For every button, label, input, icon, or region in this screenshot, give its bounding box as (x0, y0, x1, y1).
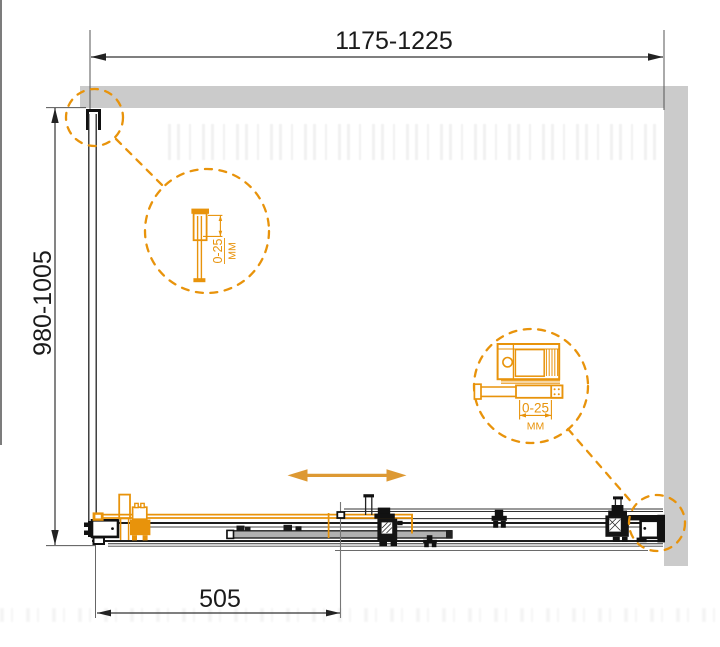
arrowhead-icon (326, 610, 340, 617)
right-roller (605, 496, 628, 541)
height-dimension-label: 980-1005 (29, 250, 57, 356)
door-travel-dimension-label: 505 (199, 585, 241, 613)
fixed-glass-panel (88, 111, 100, 523)
drawing-canvas: 1175-1225 980-1005 (0, 0, 720, 647)
detail-top-adjustment-label: 0-25 (211, 238, 225, 263)
top-wall (80, 86, 688, 108)
installation-diagram: 1175-1225 980-1005 (0, 0, 720, 647)
detail-top-unit-label: ММ (227, 242, 239, 260)
height-dimension: 980-1005 (29, 108, 96, 546)
door-clip (284, 525, 293, 531)
detail-bottom-drawing: 0-25 ММ (474, 344, 562, 433)
right-wall (664, 86, 688, 566)
door-clip (237, 526, 245, 531)
detail-bottom-unit-label: ММ (527, 421, 545, 433)
leader-line (568, 429, 634, 505)
arrowhead-icon (648, 53, 663, 61)
slide-direction-arrow-icon (288, 469, 407, 481)
detail-top-drawing: 0-25 ММ (191, 209, 238, 283)
arrowhead-icon (91, 53, 106, 61)
arrowhead-icon (219, 231, 223, 237)
arrowhead-icon (51, 108, 58, 123)
width-dimension-label: 1175-1225 (335, 27, 453, 55)
walls (1, 0, 688, 566)
detail-bottom-adjustment-label: 0-25 (522, 401, 549, 416)
arrowhead-icon (219, 215, 223, 221)
arrowhead-icon (97, 610, 111, 617)
guide-bracket (492, 510, 507, 528)
arrowhead-icon (51, 530, 58, 545)
leader-line (116, 139, 163, 186)
track-connector (337, 512, 344, 518)
door-clip (245, 527, 251, 531)
door-clip (296, 526, 302, 531)
screw-hole (503, 358, 512, 367)
